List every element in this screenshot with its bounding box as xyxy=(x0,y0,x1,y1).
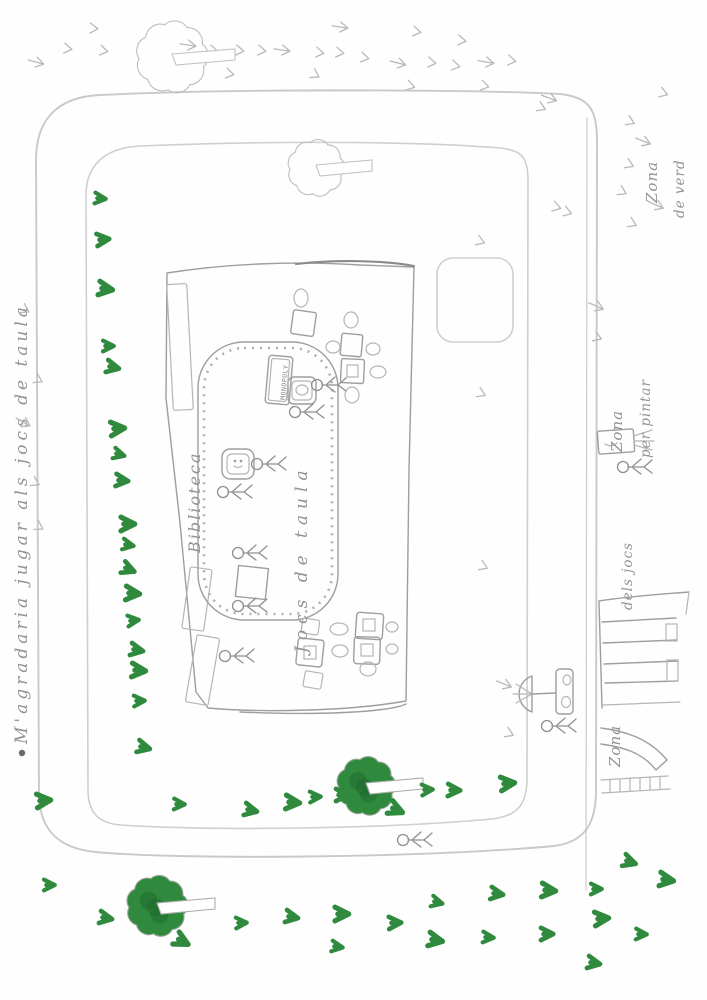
stick-figure xyxy=(233,598,268,613)
pencil-arrow-mark xyxy=(634,133,653,148)
pencil-arrow-mark xyxy=(335,47,345,58)
trees xyxy=(127,21,423,936)
pencil-arrow-mark xyxy=(315,47,325,58)
pencil-arrow-mark xyxy=(536,101,547,113)
stool xyxy=(303,671,324,690)
climbing-frame xyxy=(599,592,689,708)
tree-trunk xyxy=(172,49,235,65)
green-footprint-stamp xyxy=(310,791,321,802)
table xyxy=(332,637,398,676)
green-footprint-stamp xyxy=(622,854,637,869)
green-footprint-stamp xyxy=(113,448,126,461)
pencil-arrow-mark xyxy=(427,57,437,68)
green-footprint-stamp xyxy=(591,884,602,895)
bookshelf xyxy=(167,284,194,411)
chair xyxy=(370,366,386,378)
pencil-arrow-mark xyxy=(592,331,603,343)
pencil-arrow-mark xyxy=(476,387,487,399)
green-footprint-stamp xyxy=(137,740,152,755)
green-footprint-stamp xyxy=(103,341,114,352)
chair xyxy=(294,289,308,307)
pencil-arrow-mark xyxy=(504,727,515,739)
stick-figure xyxy=(220,648,255,663)
chair xyxy=(332,645,348,657)
green-tree xyxy=(337,757,423,816)
green-footprint-stamp xyxy=(587,956,601,970)
green-footprint-stamp xyxy=(98,281,113,296)
label-jocs-de-taula: Jocs de taula xyxy=(292,464,312,656)
pencil-arrow-mark xyxy=(562,206,573,218)
table xyxy=(326,312,380,357)
table xyxy=(290,289,316,337)
chair xyxy=(386,644,398,654)
green-footprint-stamp xyxy=(659,872,674,887)
green-footprint-stamp xyxy=(127,615,139,627)
label-zona-jocs: Zona xyxy=(606,725,624,768)
stick-figure xyxy=(233,545,268,560)
label-map-title: M'agradaria jugar als jocs de taula xyxy=(12,303,32,745)
pencil-arrow-mark xyxy=(360,52,370,63)
stick-figure xyxy=(218,484,253,499)
table xyxy=(340,358,386,403)
green-footprint-stamp xyxy=(173,932,192,951)
pencil-arrow-mark xyxy=(451,60,461,71)
pencil-arrow-mark xyxy=(257,45,267,56)
green-footprint-stamp xyxy=(490,887,504,901)
green-footprint-stamp xyxy=(130,643,144,657)
green-footprint-stamp xyxy=(331,941,343,953)
green-footprint-stamp xyxy=(636,929,647,940)
pencil-arrow-mark xyxy=(90,23,99,34)
pencil-arrow-mark xyxy=(33,374,45,387)
chair xyxy=(386,622,398,632)
pencil-arrow-mark xyxy=(507,55,517,66)
label-zona-jocs-2: dels jocs xyxy=(620,542,636,610)
pencil-tree xyxy=(137,21,235,93)
table xyxy=(330,612,398,640)
green-footprint-stamp xyxy=(428,932,444,948)
green-footprint-stamp xyxy=(126,586,141,601)
chair xyxy=(345,387,359,403)
pencil-arrow-mark xyxy=(475,235,486,247)
pencil-arrow-mark xyxy=(331,21,348,33)
stick-figure xyxy=(398,832,433,847)
pencil-arrow-mark xyxy=(625,115,636,127)
stick-figure xyxy=(542,718,577,733)
pencil-arrow-mark xyxy=(480,80,490,92)
label-zona-pintar: Zona xyxy=(608,410,626,453)
checkerboard xyxy=(235,566,268,600)
green-footprint-stamp xyxy=(595,911,610,926)
pencil-arrow-mark xyxy=(624,158,635,170)
chair xyxy=(330,623,348,635)
pencil-arrow-mark xyxy=(551,201,562,213)
pencil-arrow-mark xyxy=(478,560,489,572)
title-bullet xyxy=(19,750,25,756)
green-footprint-stamp xyxy=(335,907,349,921)
stick-figure xyxy=(290,404,325,419)
green-footprint-stamp xyxy=(44,880,55,891)
green-footprint-stamp xyxy=(95,193,107,205)
tv xyxy=(288,377,316,404)
pencil-arrow-mark xyxy=(179,39,196,51)
map-canvas: M'agradaria jugar als jocs de taula Zona… xyxy=(0,0,707,1000)
green-footprint-stamp xyxy=(244,803,259,818)
pencil-arrow-mark xyxy=(99,45,109,56)
pencil-arrow-mark xyxy=(27,55,45,69)
scanned-drawing: M'agradaria jugar als jocs de taula Zona… xyxy=(0,0,707,1000)
stick-figure xyxy=(618,459,653,474)
tree-trunk xyxy=(316,160,372,176)
pencil-arrow-mark xyxy=(457,35,466,46)
pencil-arrow-mark xyxy=(273,44,290,56)
label-zona-verd: Zona xyxy=(643,161,661,204)
chair xyxy=(366,343,380,355)
pencil-arrow-mark xyxy=(412,26,422,37)
pencil-arrow-mark xyxy=(495,676,514,691)
green-footprint-stamp xyxy=(286,795,301,810)
green-footprint-stamp xyxy=(106,360,121,375)
pencil-arrow-mark xyxy=(34,521,46,534)
green-footprint-stamp xyxy=(134,695,145,706)
label-zona-pintar-2: per pintar xyxy=(638,378,654,458)
green-footprint-stamp xyxy=(121,561,137,577)
green-footprint-stamp xyxy=(236,917,247,928)
chair xyxy=(344,312,358,328)
green-footprint-stamp xyxy=(500,776,515,791)
green-footprint-stamp xyxy=(122,539,135,552)
pencil-arrow-mark xyxy=(225,68,235,79)
stick-figure xyxy=(252,456,287,471)
pencil-arrow-mark xyxy=(658,87,669,99)
green-footprint-stamp xyxy=(121,517,135,531)
green-footprint-stamp xyxy=(174,799,185,810)
pencil-arrow-mark xyxy=(617,186,629,199)
pencil-arrow-mark xyxy=(627,217,638,229)
pencil-arrow-mark xyxy=(477,56,494,69)
annex-outline xyxy=(437,258,513,342)
pencil-arrow-mark xyxy=(235,45,244,56)
green-footprint-stamp xyxy=(483,932,495,944)
green-footprint-stamp xyxy=(431,896,444,909)
green-tree xyxy=(127,875,215,936)
green-footprint-stamp xyxy=(448,784,461,797)
pencil-arrow-mark xyxy=(63,43,73,54)
right-margin-line xyxy=(586,118,588,890)
green-footprint-stamp xyxy=(115,474,128,487)
green-footprint-stamp xyxy=(542,883,557,898)
bookshelf xyxy=(182,567,212,631)
label-biblioteca: Biblioteca xyxy=(185,452,204,554)
green-footprint-stamp xyxy=(99,911,113,925)
label-zona-verd-2: de verd xyxy=(672,159,688,218)
pencil-arrow-mark xyxy=(389,56,407,70)
pencil-tree xyxy=(288,140,372,197)
green-footprint-stamp xyxy=(37,793,52,808)
green-footprint-stamps xyxy=(37,193,675,971)
chair xyxy=(326,341,340,353)
green-footprint-stamp xyxy=(285,910,299,924)
pencil-marks xyxy=(14,21,670,740)
green-footprint-stamp xyxy=(422,784,433,795)
computer-screen xyxy=(222,449,254,479)
pencil-arrow-mark xyxy=(310,69,322,82)
bookshelf xyxy=(185,635,219,706)
green-footprint-stamp xyxy=(132,663,147,678)
green-footprint-stamp xyxy=(96,233,109,246)
green-footprint-stamp xyxy=(541,928,553,940)
green-footprint-stamp xyxy=(111,421,126,436)
green-footprint-stamp xyxy=(389,916,402,929)
picnic-table xyxy=(513,669,573,714)
